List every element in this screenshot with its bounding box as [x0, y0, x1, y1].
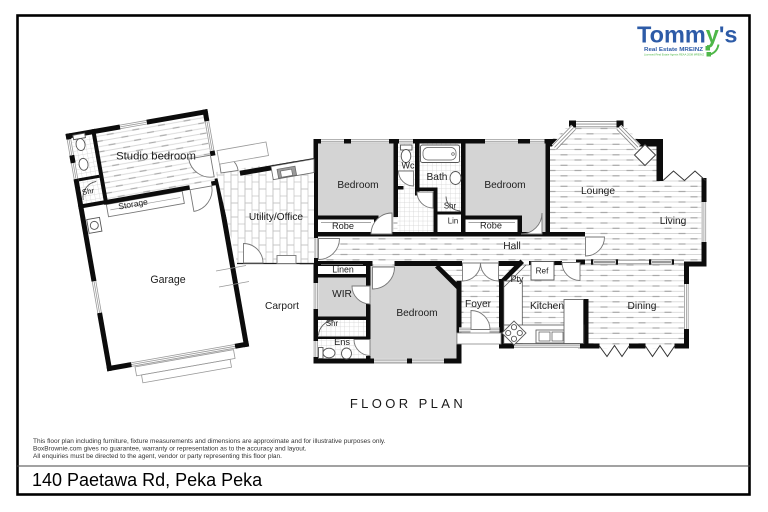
svg-text:Bedroom: Bedroom	[396, 308, 437, 319]
svg-text:Tommy's: Tommy's	[637, 22, 738, 48]
svg-text:BoxBrownie.com gives no guaran: BoxBrownie.com gives no guarantee, warra…	[33, 446, 307, 453]
svg-text:Robe: Robe	[480, 221, 502, 231]
svg-text:Robe: Robe	[332, 221, 354, 231]
svg-text:Bedroom: Bedroom	[337, 180, 378, 191]
svg-text:Linen: Linen	[332, 265, 354, 275]
svg-text:Living: Living	[660, 216, 687, 227]
svg-text:Bath: Bath	[427, 172, 448, 183]
svg-text:Lounge: Lounge	[581, 186, 615, 197]
svg-text:Shr: Shr	[326, 319, 339, 328]
svg-text:Utility/Office: Utility/Office	[249, 212, 303, 223]
svg-text:Ens: Ens	[334, 337, 350, 347]
svg-text:Kitchen: Kitchen	[530, 301, 564, 312]
svg-text:Garage: Garage	[150, 274, 185, 286]
svg-text:WIR: WIR	[332, 289, 352, 300]
svg-text:Pty: Pty	[511, 274, 524, 284]
svg-text:Ref: Ref	[536, 267, 549, 276]
svg-text:Dining: Dining	[628, 301, 657, 312]
svg-text:This floor plan including furn: This floor plan including furniture, fix…	[33, 438, 386, 445]
svg-text:Shr: Shr	[444, 202, 457, 211]
svg-text:FLOOR PLAN: FLOOR PLAN	[350, 396, 466, 411]
svg-text:Studio bedroom: Studio bedroom	[116, 151, 196, 163]
svg-text:All enquiries must be directed: All enquiries must be directed to the ag…	[33, 453, 282, 460]
svg-text:Foyer: Foyer	[465, 299, 492, 310]
svg-text:Lin: Lin	[448, 217, 458, 226]
svg-text:Bedroom: Bedroom	[484, 180, 525, 191]
svg-text:140 Paetawa Rd, Peka Peka: 140 Paetawa Rd, Peka Peka	[32, 470, 263, 490]
svg-text:Wc: Wc	[402, 161, 415, 171]
svg-text:Hall: Hall	[503, 241, 521, 252]
svg-text:Real Estate MREINZ: Real Estate MREINZ	[644, 47, 704, 53]
svg-text:Licensed Real Estate Agents RE: Licensed Real Estate Agents REAA 2008 MR…	[644, 53, 704, 57]
svg-text:Carport: Carport	[265, 301, 299, 312]
